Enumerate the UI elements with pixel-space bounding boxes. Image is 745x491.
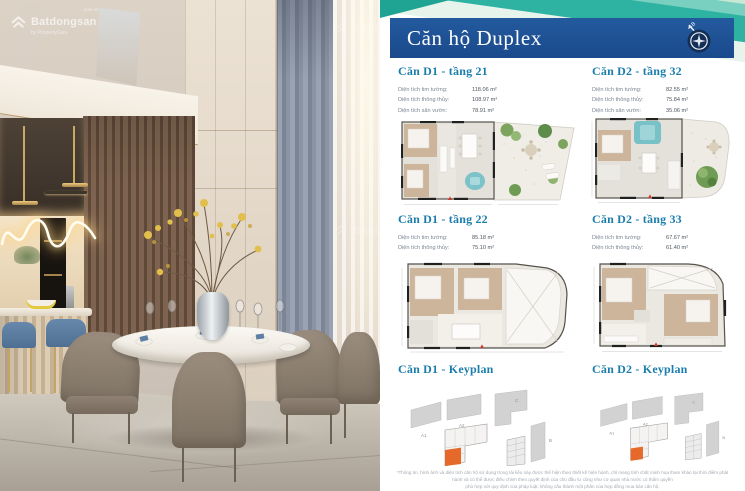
bar-stool bbox=[2, 322, 36, 348]
unit-specs: Diện tích tim tường:118.06 m² Diện tích … bbox=[398, 85, 580, 116]
metal-vase bbox=[197, 292, 229, 340]
chair-leg bbox=[234, 444, 236, 482]
spec-label: Diện tích thông thủy: bbox=[592, 95, 666, 105]
keyplan-building-label: B bbox=[549, 438, 552, 443]
keyplan-building-label: C bbox=[692, 399, 695, 404]
linear-pendant-bar bbox=[45, 191, 87, 194]
spec-row: Diện tích tim tường:82.55 m² bbox=[592, 85, 742, 95]
unit-section-d1-22: Căn D1 - tầng 22 Diện tích tim tường:85.… bbox=[398, 212, 580, 254]
chair-leg bbox=[344, 404, 346, 438]
spec-label: Diện tích thông thủy: bbox=[592, 243, 666, 253]
header-banner: Căn hộ Duplex B bbox=[390, 18, 734, 58]
flower-branches bbox=[108, 192, 264, 304]
fruit-bowl bbox=[26, 300, 56, 309]
spec-value: 118.06 m² bbox=[472, 85, 497, 95]
spec-label: Diện tích tim tường: bbox=[592, 233, 666, 243]
unit-specs: Diện tích tim tường:67.67 m² Diện tích t… bbox=[592, 233, 742, 254]
keyplan-map-d1: A1 A2 C B bbox=[396, 380, 572, 466]
floor-plan-d1-22 bbox=[394, 256, 582, 354]
panel-wall-seam bbox=[185, 130, 278, 131]
keyplan-building-label: A1 bbox=[421, 433, 427, 438]
keyplan-building-label: A2 bbox=[643, 422, 648, 427]
keyplan-title: Căn D1 - Keyplan bbox=[398, 362, 494, 377]
unit-title: Căn D2 - tầng 33 bbox=[592, 212, 742, 227]
info-panel: Căn hộ Duplex B Căn D1 - tầng 21 Diện tí… bbox=[380, 0, 745, 491]
keyplan-title: Căn D2 - Keyplan bbox=[592, 362, 688, 377]
spec-label: Diện tích thông thủy: bbox=[398, 95, 472, 105]
brand-watermark-faint: Batdongsan bbox=[334, 20, 380, 36]
keyplan-building-label: A1 bbox=[609, 430, 615, 435]
brand-byline: by PropertyGuru bbox=[31, 31, 97, 36]
stool-leg bbox=[8, 348, 10, 392]
pendant-light bbox=[73, 126, 75, 184]
spec-row: Diện tích thông thủy:61.40 m² bbox=[592, 243, 742, 253]
spec-row: Diện tích tim tường:67.67 m² bbox=[592, 233, 742, 243]
stool-leg bbox=[30, 348, 32, 392]
page-title: Căn hộ Duplex bbox=[390, 26, 542, 51]
spec-value: 75.10 m² bbox=[472, 243, 494, 253]
dining-chair-front bbox=[172, 352, 246, 448]
brand-logo-icon bbox=[334, 20, 349, 35]
unit-title: Căn D2 - tầng 32 bbox=[592, 64, 742, 79]
spec-label: Diện tích tim tường: bbox=[398, 85, 472, 95]
keyplan-map-d2: A1 A2 C B bbox=[590, 380, 740, 464]
floor-plan-d2-33 bbox=[590, 256, 740, 354]
brand-name: Batdongsan bbox=[353, 225, 380, 237]
spec-label: Diện tích thông thủy: bbox=[398, 243, 472, 253]
spec-value: 67.67 m² bbox=[666, 233, 688, 243]
disclaimer-text: *Thông tin, hình ảnh và diện tích căn hộ… bbox=[392, 469, 733, 490]
highlighted-unit-d2 bbox=[631, 447, 643, 461]
spec-row: Diện tích sân vườn:78.91 m² bbox=[398, 106, 580, 116]
panel-wall-seam bbox=[185, 188, 278, 189]
spec-label: Diện tích sân vườn: bbox=[398, 106, 472, 116]
disclaimer-line: *Thông tin, hình ảnh và diện tích căn hộ… bbox=[392, 469, 733, 483]
unit-section-d2-32: Căn D2 - tầng 32 Diện tích tim tường:82.… bbox=[592, 64, 742, 116]
brochure-page: Batdongsan .com.vn by PropertyGuru Batdo… bbox=[0, 0, 745, 491]
stool-leg bbox=[54, 347, 56, 393]
keyplan-building-label: A2 bbox=[459, 423, 465, 428]
unit-section-d2-33: Căn D2 - tầng 33 Diện tích tim tường:67.… bbox=[592, 212, 742, 254]
spec-value: 75.84 m² bbox=[666, 95, 688, 105]
spec-row: Diện tích thông thủy:75.10 m² bbox=[398, 243, 580, 253]
pendant-light bbox=[23, 126, 25, 202]
spec-label: Diện tích tim tường: bbox=[592, 85, 666, 95]
spec-row: Diện tích thông thủy:75.84 m² bbox=[592, 95, 742, 105]
unit-specs: Diện tích tim tường:82.55 m² Diện tích t… bbox=[592, 85, 742, 116]
chair-leg bbox=[182, 446, 184, 482]
floor-plan-d2-32 bbox=[590, 113, 742, 205]
kitchen-island-top bbox=[0, 308, 92, 316]
disclaimer-line: phù hợp với quy định của pháp luật; khôn… bbox=[392, 483, 733, 490]
brand-suffix: .com.vn bbox=[83, 8, 99, 13]
dining-chair bbox=[338, 332, 380, 404]
chair-leg bbox=[330, 413, 332, 444]
chair-leg bbox=[72, 413, 74, 443]
spec-row: Diện tích tim tường:118.06 m² bbox=[398, 85, 580, 95]
spec-value: 78.91 m² bbox=[472, 106, 494, 116]
floor-plan-d1-21 bbox=[394, 118, 582, 206]
unit-specs: Diện tích tim tường:85.18 m² Diện tích t… bbox=[398, 233, 580, 254]
place-setting bbox=[280, 344, 296, 351]
spec-value: 61.40 m² bbox=[666, 243, 688, 253]
keyplan-section-d2: Căn D2 - Keyplan bbox=[592, 362, 688, 377]
neon-wall-light bbox=[0, 204, 100, 260]
pendant-light-shade bbox=[12, 201, 38, 205]
brand-logo-icon bbox=[10, 13, 27, 30]
brand-logo-icon bbox=[334, 222, 349, 237]
interior-photo: Batdongsan .com.vn by PropertyGuru Batdo… bbox=[0, 0, 380, 491]
brand-name: Batdongsan bbox=[31, 16, 97, 28]
unit-title: Căn D1 - tầng 22 bbox=[398, 212, 580, 227]
unit-section-d1-21: Căn D1 - tầng 21 Diện tích tim tường:118… bbox=[398, 64, 580, 116]
unit-title: Căn D1 - tầng 21 bbox=[398, 64, 580, 79]
spec-value: 108.97 m² bbox=[472, 95, 497, 105]
glass-reflection bbox=[96, 8, 140, 86]
spec-value: 82.55 m² bbox=[666, 85, 688, 95]
oven-display bbox=[44, 274, 62, 276]
compass-icon: B bbox=[680, 20, 716, 56]
spec-value: 85.18 m² bbox=[472, 233, 494, 243]
spec-row: Diện tích tim tường:85.18 m² bbox=[398, 233, 580, 243]
keyplan-building-label: B bbox=[722, 435, 725, 440]
pendant-light-shade bbox=[62, 183, 88, 187]
brand-name: Batdongsan bbox=[353, 23, 380, 35]
spec-label: Diện tích tim tường: bbox=[398, 233, 472, 243]
highlighted-unit-d1 bbox=[445, 448, 461, 466]
brand-watermark: Batdongsan .com.vn by PropertyGuru bbox=[10, 13, 97, 36]
keyplan-section-d1: Căn D1 - Keyplan bbox=[398, 362, 494, 377]
brand-watermark-faint: Batdongsan bbox=[334, 222, 380, 238]
spec-row: Diện tích thông thủy:108.97 m² bbox=[398, 95, 580, 105]
